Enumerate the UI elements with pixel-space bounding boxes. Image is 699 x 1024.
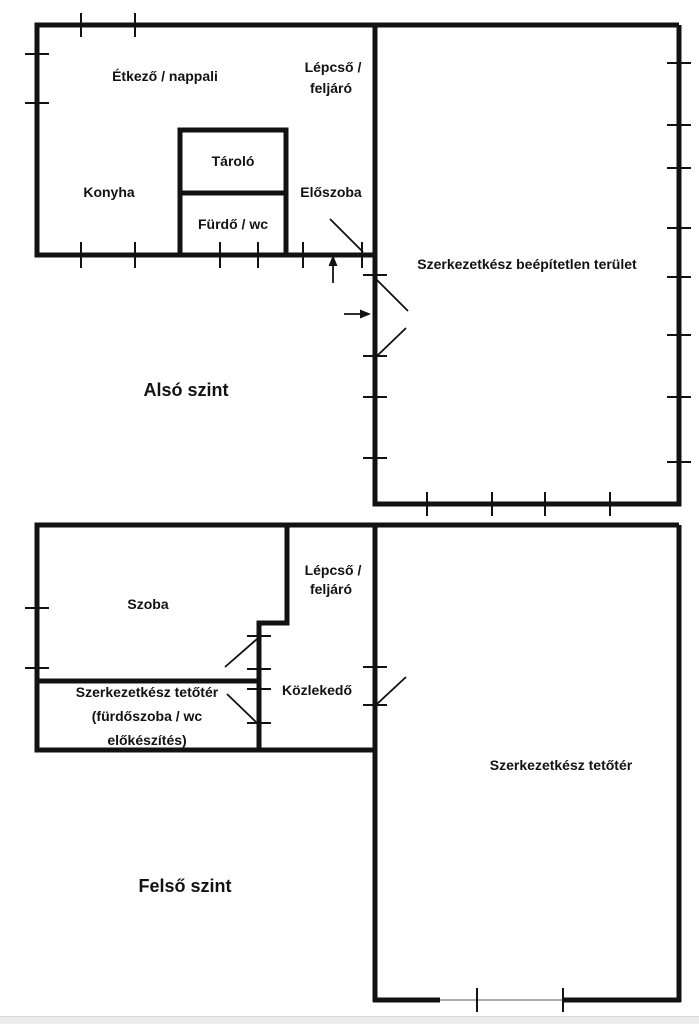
room-label-room: Szoba xyxy=(127,596,168,612)
floor-plan-drawing: Étkező / nappali Lépcső / feljáró Tároló… xyxy=(0,0,699,1024)
room-label-hall: Előszoba xyxy=(300,184,362,200)
storage-bathroom-inner-walls xyxy=(180,130,286,256)
room-label-unbuilt-area: Szerkezetkész beépítetlen terület xyxy=(417,256,637,272)
room-label-storage: Tároló xyxy=(212,153,255,169)
room-label-bathroom: Fürdő / wc xyxy=(198,216,268,232)
ground-door-swing-lines xyxy=(330,219,408,356)
room-label-stairs-line2: feljáró xyxy=(310,80,352,96)
room-label-dining-living: Étkező / nappali xyxy=(112,68,218,84)
stair-enclosure-wall xyxy=(259,523,287,752)
page-footer-bar xyxy=(0,1016,699,1024)
room-label-attic: Szerkezetkész tetőtér xyxy=(490,757,633,773)
room-label-attic-prep-line2: (fürdőszoba / wc xyxy=(92,708,203,724)
room-label-stairs-line1: Lépcső / xyxy=(305,59,362,75)
ground-floor-plan: Étkező / nappali Lépcső / feljáró Tároló… xyxy=(25,13,691,516)
entrance-arrow-up-icon xyxy=(329,255,338,283)
room-label-attic-prep-line3: előkészítés) xyxy=(107,732,186,748)
entrance-arrow-right-icon xyxy=(344,310,371,319)
ground-floor-title: Alsó szint xyxy=(143,380,228,400)
room-label-upper-stairs-line2: feljáró xyxy=(310,581,352,597)
upper-floor-title: Felső szint xyxy=(138,876,231,896)
room-label-corridor: Közlekedő xyxy=(282,682,352,698)
upper-floor-plan: Szoba Lépcső / feljáró Szerkezetkész tet… xyxy=(25,523,681,1012)
floor-plan-page: Étkező / nappali Lépcső / feljáró Tároló… xyxy=(0,0,699,1024)
arrow-head xyxy=(360,310,371,319)
room-label-kitchen: Konyha xyxy=(83,184,135,200)
room-label-attic-prep-line1: Szerkezetkész tetőtér xyxy=(76,684,219,700)
room-label-upper-stairs-line1: Lépcső / xyxy=(305,562,362,578)
